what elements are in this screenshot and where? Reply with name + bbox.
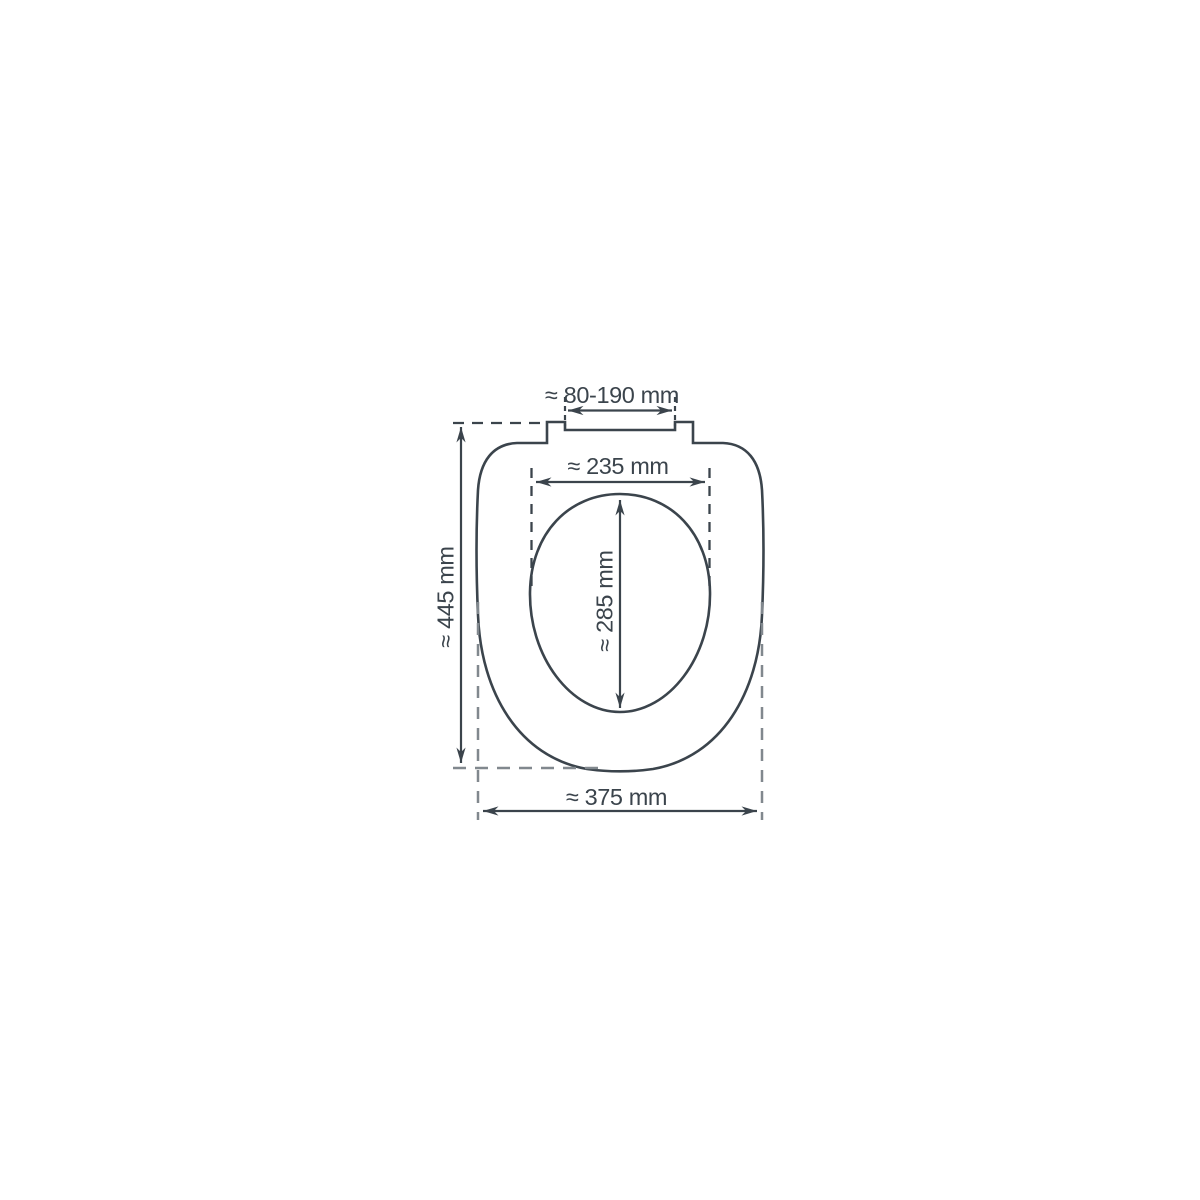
inner-width-label: ≈ 235 mm	[567, 453, 668, 479]
toilet-seat-dimension-svg: ≈ 80-190 mm ≈ 235 mm ≈ 445 mm ≈ 285 mm ≈…	[0, 0, 1200, 1200]
inner-length-label: ≈ 285 mm	[592, 550, 618, 651]
hinge-spacing-label: ≈ 80-190 mm	[545, 382, 679, 408]
outer-length-label: ≈ 445 mm	[433, 546, 459, 647]
outer-width-label: ≈ 375 mm	[566, 784, 667, 810]
dimension-diagram: ≈ 80-190 mm ≈ 235 mm ≈ 445 mm ≈ 285 mm ≈…	[0, 0, 1200, 1200]
dimension-labels: ≈ 80-190 mm ≈ 235 mm ≈ 445 mm ≈ 285 mm ≈…	[433, 382, 679, 810]
